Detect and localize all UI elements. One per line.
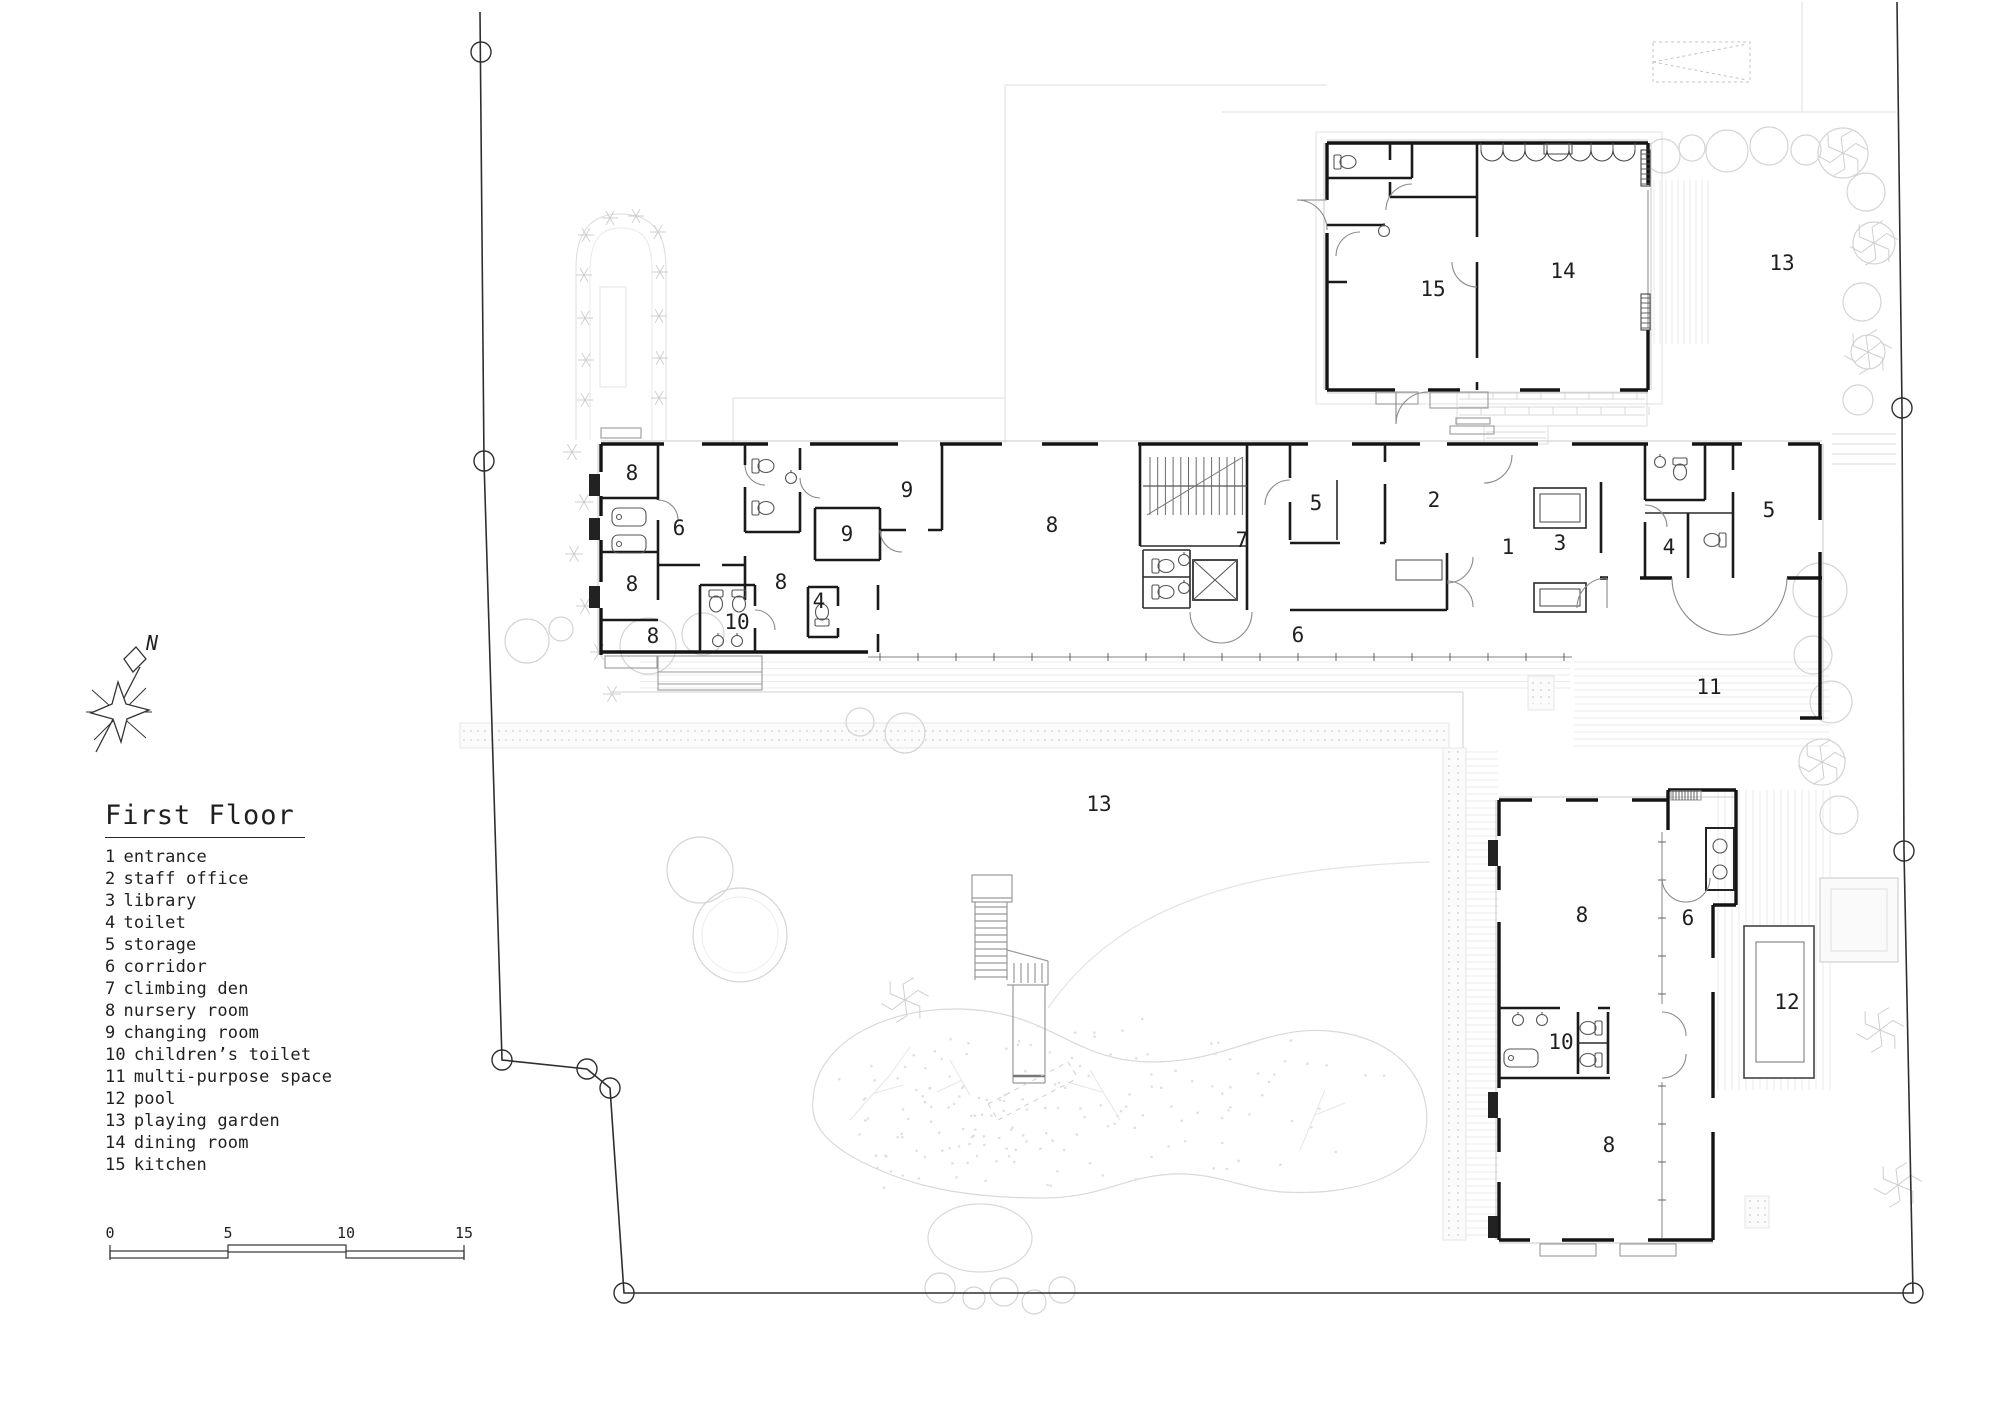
room-number-label: 8 <box>626 572 639 596</box>
legend-item-label: staff office <box>123 869 248 889</box>
legend-item: 7climbing den <box>105 978 332 1000</box>
legend-item-number: 10 <box>105 1045 126 1065</box>
legend-item-number: 13 <box>105 1111 126 1131</box>
room-number-label: 10 <box>1548 1030 1573 1054</box>
legend-item-number: 12 <box>105 1089 126 1109</box>
legend-list: 1entrance2staff office3library4toilet5st… <box>105 846 332 1176</box>
garden-structure <box>1820 878 1898 962</box>
scale-tick-5: 5 <box>223 1224 232 1242</box>
legend-item-number: 9 <box>105 1023 115 1043</box>
legend-item-label: toilet <box>123 913 186 933</box>
legend-item: 2staff office <box>105 868 332 890</box>
legend-item-label: playing garden <box>134 1111 280 1131</box>
legend-item-number: 6 <box>105 957 115 977</box>
steps <box>601 392 1676 1256</box>
legend-item: 11multi-purpose space <box>105 1066 332 1088</box>
legend-item-number: 7 <box>105 979 115 999</box>
legend-item-number: 3 <box>105 891 115 911</box>
room-number-label: 1 <box>1502 535 1515 559</box>
floor-plan-drawing: 868810849987521634511151413138612108 N 0… <box>0 0 2000 1414</box>
room-number-label: 8 <box>775 570 788 594</box>
legend-item: 3library <box>105 890 332 912</box>
playing-garden <box>813 862 1430 1272</box>
room-number-label: 2 <box>1428 488 1441 512</box>
scale-tick-0: 0 <box>105 1224 114 1242</box>
dining-window-scallops <box>1481 143 1635 161</box>
room-number-label: 13 <box>1086 792 1111 816</box>
title-block: First Floor <box>105 800 305 838</box>
main-staircase <box>1143 457 1247 515</box>
legend-item-number: 4 <box>105 913 115 933</box>
legend-item-number: 15 <box>105 1155 126 1175</box>
legend-item: 1entrance <box>105 846 332 868</box>
room-number-label: 9 <box>841 522 854 546</box>
room-number-label: 4 <box>813 589 826 613</box>
vine-pergola <box>576 209 668 440</box>
room-number-label: 6 <box>673 516 686 540</box>
scale-tick-10: 10 <box>337 1224 355 1242</box>
room-number-label: 5 <box>1310 491 1323 515</box>
page-title: First Floor <box>105 800 305 838</box>
legend-item-number: 5 <box>105 935 115 955</box>
legend-item-number: 11 <box>105 1067 126 1087</box>
room-number-label: 13 <box>1769 251 1794 275</box>
room-number-label: 8 <box>647 624 660 648</box>
room-number-label: 6 <box>1292 623 1305 647</box>
room-number-label: 8 <box>1576 903 1589 927</box>
scale-tick-15: 15 <box>455 1224 473 1242</box>
sanitary-fixtures <box>612 155 1726 1067</box>
room-number-label: 14 <box>1550 259 1575 283</box>
room-number-label: 12 <box>1774 990 1799 1014</box>
site-faint-lines <box>612 2 1896 748</box>
legend-item: 14dining room <box>105 1132 332 1154</box>
legend-item-label: nursery room <box>123 1001 248 1021</box>
legend-item-label: dining room <box>134 1133 249 1153</box>
legend-item: 15kitchen <box>105 1154 332 1176</box>
floor-plan-sheet: 868810849987521634511151413138612108 N 0… <box>0 0 2000 1414</box>
legend-item: 12pool <box>105 1088 332 1110</box>
legend-item-label: entrance <box>123 847 206 867</box>
room-number-label: 11 <box>1696 675 1721 699</box>
legend-item: 6corridor <box>105 956 332 978</box>
legend-item-label: multi-purpose space <box>134 1067 332 1087</box>
room-number-label: 7 <box>1236 528 1249 552</box>
legend-item-label: corridor <box>123 957 206 977</box>
legend-item-number: 8 <box>105 1001 115 1021</box>
room-number-label: 8 <box>626 461 639 485</box>
north-label: N <box>145 631 159 655</box>
legend-item: 9changing room <box>105 1022 332 1044</box>
legend-item: 13playing garden <box>105 1110 332 1132</box>
room-number-label: 5 <box>1763 498 1776 522</box>
room-number-label: 10 <box>724 610 749 634</box>
room-number-label: 8 <box>1603 1133 1616 1157</box>
legend-item: 5storage <box>105 934 332 956</box>
trees <box>505 127 1922 1314</box>
legend-item-label: storage <box>123 935 196 955</box>
room-number-label: 3 <box>1554 531 1567 555</box>
legend-item-label: pool <box>134 1089 176 1109</box>
glazing <box>868 190 1666 1238</box>
doors <box>658 184 1787 1078</box>
legend-item: 8nursery room <box>105 1000 332 1022</box>
legend-item-number: 14 <box>105 1133 126 1153</box>
garden-slide <box>972 875 1078 1120</box>
room-number-label: 8 <box>1046 513 1059 537</box>
room-number-label: 4 <box>1663 535 1676 559</box>
legend-item: 10children’s toilet <box>105 1044 332 1066</box>
legend-item-label: changing room <box>123 1023 259 1043</box>
scale-bar: 0 5 10 15 <box>105 1224 473 1260</box>
legend-item-label: library <box>123 891 196 911</box>
room-number-label: 15 <box>1420 277 1445 301</box>
legend-item-label: kitchen <box>134 1155 207 1175</box>
pebble-path <box>460 676 1769 1240</box>
legend-item-number: 1 <box>105 847 115 867</box>
legend-item-label: climbing den <box>123 979 248 999</box>
legend-item-number: 2 <box>105 869 115 889</box>
room-number-label: 9 <box>901 478 914 502</box>
legend-item: 4toilet <box>105 912 332 934</box>
room-number-label: 6 <box>1682 906 1695 930</box>
legend-item-label: children’s toilet <box>134 1045 311 1065</box>
north-compass: N <box>86 631 159 752</box>
